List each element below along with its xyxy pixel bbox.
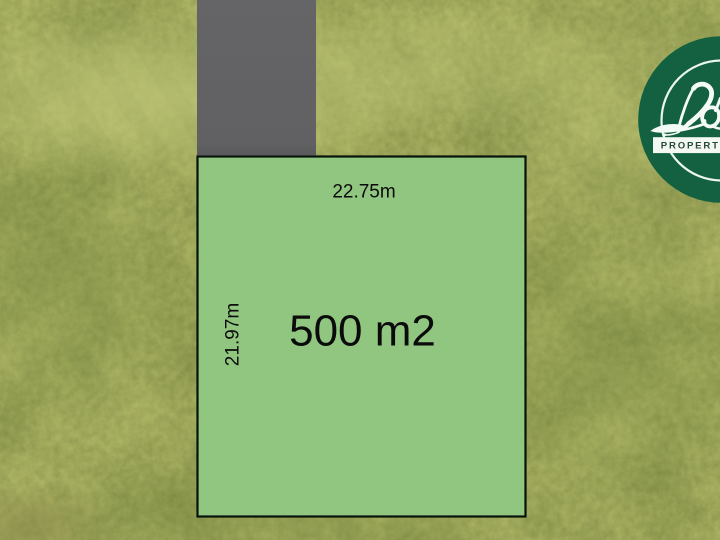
svg-text:PROPERT: PROPERT <box>661 141 720 152</box>
svg-text:500 m2: 500 m2 <box>289 307 436 356</box>
svg-text:21.97m: 21.97m <box>223 303 244 366</box>
svg-text:22.75m: 22.75m <box>332 182 395 203</box>
